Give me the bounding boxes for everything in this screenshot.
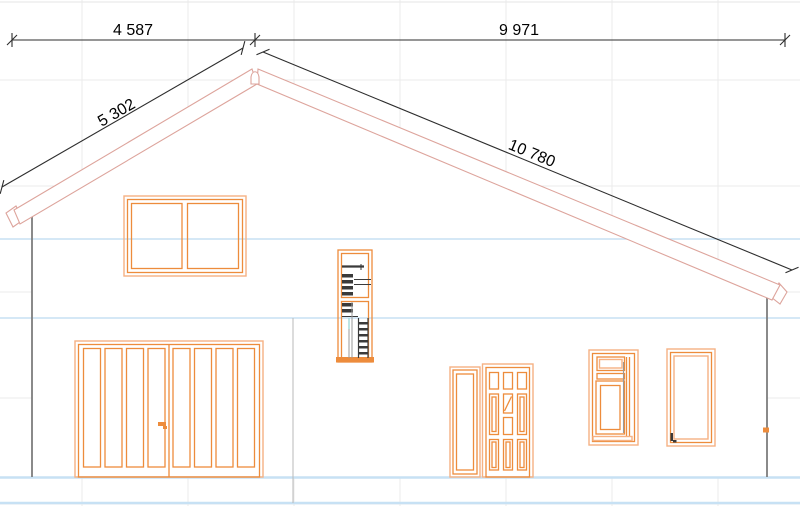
garage-handle bbox=[158, 422, 166, 426]
tread bbox=[342, 286, 353, 290]
ladder-rung bbox=[359, 334, 368, 337]
tread bbox=[342, 274, 353, 278]
garage-handle bbox=[163, 426, 167, 429]
window-handle bbox=[671, 433, 674, 441]
ladder-rung bbox=[359, 340, 368, 343]
dimension-label-top-right[interactable]: 9 971 bbox=[499, 22, 539, 39]
tread bbox=[342, 280, 353, 284]
tread bbox=[342, 309, 353, 313]
dimension-tick bbox=[236, 41, 250, 55]
ladder-rung bbox=[359, 352, 368, 355]
dimension-tick bbox=[256, 45, 269, 58]
dimension-label-roof-left[interactable]: 5 302 bbox=[95, 96, 138, 131]
ladder-rung bbox=[359, 322, 368, 325]
dimension-label-roof-right[interactable]: 10 780 bbox=[506, 137, 558, 171]
dimension-tick bbox=[785, 263, 798, 276]
ladder-rung bbox=[359, 346, 368, 349]
dimension-label-top-left[interactable]: 4 587 bbox=[113, 22, 153, 39]
wall-marker bbox=[763, 428, 769, 433]
ladder-rung bbox=[359, 328, 368, 331]
ridge-cap bbox=[251, 72, 259, 84]
dimension-tick bbox=[0, 180, 9, 194]
cad-canvas[interactable]: 4 587 9 971 5 302 10 780 bbox=[0, 0, 800, 506]
tread bbox=[342, 292, 353, 296]
window-handle bbox=[673, 440, 677, 443]
tread bbox=[342, 303, 353, 307]
